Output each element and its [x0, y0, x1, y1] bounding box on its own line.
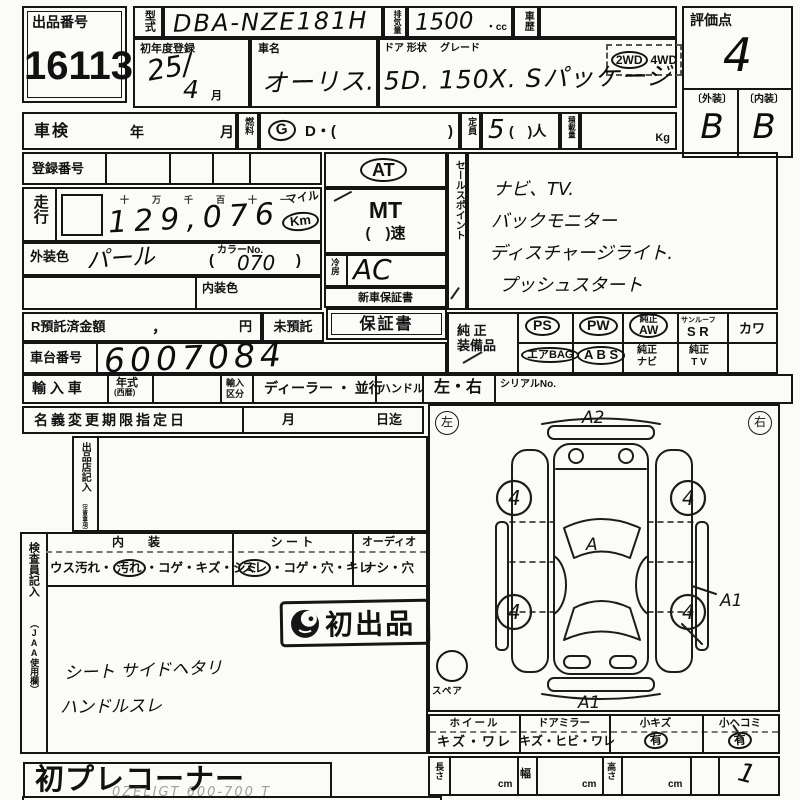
capacity-value: 5	[488, 116, 505, 145]
equip-navi-bot: ナビ	[637, 357, 657, 368]
ext-color-label: 外装色	[30, 250, 69, 265]
equip-aw: 純正 AW	[629, 313, 668, 338]
import-label: 輸 入 車	[32, 381, 82, 397]
new-warranty-box: 新車保証書	[324, 287, 447, 308]
first-reg-month-label: 月	[211, 90, 222, 102]
fuel-label: 燃料	[244, 117, 254, 135]
interior-grade-label: 〔内装〕	[740, 94, 788, 105]
shaken-box: 車検 年 月	[22, 112, 237, 150]
small-dent-header: 小ヘコミ	[702, 718, 778, 730]
model-value-box: DBA-NZE181H	[163, 6, 383, 38]
sales-line-2: バックモニター	[491, 212, 617, 232]
width-label: 幅	[520, 768, 531, 780]
warranty-label: 保証書	[328, 316, 445, 334]
import-dealer: ディーラー ・ 並行	[264, 381, 383, 397]
color-no-value: 070	[237, 252, 275, 274]
deposit-comma: ，	[152, 320, 167, 337]
equipment-label-1: 純 正	[457, 324, 487, 339]
sales-line-1: ナビ、TV.	[493, 180, 574, 200]
mt-value: MT	[326, 198, 445, 224]
fuel-label-box: 燃料	[237, 112, 259, 150]
sales-label-box: セールスポイント	[447, 152, 467, 310]
width-unit: cm	[582, 779, 596, 790]
color-no-close: )	[296, 253, 301, 270]
first-reg-box: 初年度登録 25/ 4 月	[133, 38, 250, 108]
inspector-label: 検査員記入	[27, 542, 39, 597]
length-unit: cm	[498, 779, 512, 790]
wheel-mark-4: 4	[682, 600, 695, 624]
fuel-gasoline: G	[267, 118, 297, 142]
grade-label: グレード	[440, 43, 480, 54]
seller-label-sub: （注意事項）	[81, 500, 87, 533]
mt-box: MT ( )速	[324, 188, 447, 254]
seat-opt-circled: スレ	[238, 559, 271, 577]
import-class-label: 輸入区分	[226, 378, 244, 400]
ext-color-value: パール	[85, 245, 156, 276]
equip-navi-top: 純正	[637, 345, 657, 356]
not-deposited-label: 未預託	[264, 320, 322, 335]
interior-opt-circled: 汚れ	[113, 559, 146, 577]
name-change-until: 日迄	[376, 413, 402, 428]
seller-box: 出品店記入 （注意事項）	[72, 436, 428, 532]
equip-pw: PW	[579, 316, 618, 336]
dimensions-row: 長さ cm 幅 cm 高さ cm 1	[428, 756, 780, 796]
score-label: 評価点	[690, 13, 732, 29]
score-value: 4	[684, 30, 791, 82]
history-value-box	[539, 6, 677, 38]
import-year-sub: (西暦)	[114, 389, 135, 398]
first-reg-month-value: 4	[183, 76, 199, 104]
stamp-logo-icon	[289, 608, 322, 641]
load-label: 積載量	[567, 116, 575, 139]
mileage-value: 129,076	[107, 197, 282, 240]
ac-value: AC	[353, 254, 392, 285]
score-box: 評価点 4 〔外装〕 〔内装〕 B B	[682, 6, 793, 158]
chassis-box: 車台番号 6007084	[22, 342, 447, 374]
small-scratch-header: 小キズ	[609, 718, 702, 730]
small-scratch-value: 有	[643, 731, 669, 751]
shaken-year: 年	[130, 125, 144, 141]
color-no-open: (	[209, 253, 214, 270]
mirror-header: ドアミラー	[519, 718, 609, 730]
fuel-diesel: D・(	[305, 124, 336, 141]
wheel-mark-2: 4	[682, 486, 695, 510]
load-label-box: 積載量	[560, 112, 580, 150]
equip-aw-bot: AW	[639, 324, 658, 336]
interior-options: ウス汚れ・汚れ・コゲ・キズ・シミ	[50, 559, 258, 577]
interior-opt-pre: ウス汚れ・	[50, 561, 113, 575]
sales-label: セールスポイント	[453, 160, 464, 240]
equipment-label-2: 装備品	[457, 339, 496, 354]
height-label: 高さ	[606, 762, 616, 780]
first-listing-stamp-text: 初出品	[325, 602, 416, 644]
km-label: Km	[281, 210, 320, 232]
car-diagram-box: 左 右 スペア	[428, 404, 780, 712]
displacement-label-box: 排気量	[383, 6, 407, 38]
capacity-value-box: 5 ( )人	[481, 112, 560, 150]
int-color-label: 内装色	[202, 282, 238, 295]
warranty-box: 保証書	[326, 308, 447, 340]
inspector-box: 検査員記入 （JAA使用欄） 内 装 シ ー ト オーディオ ウス汚れ・汚れ・コ…	[20, 532, 428, 754]
deposit-label: R預託済金額	[31, 320, 105, 335]
seller-label: 出品店記入	[79, 442, 90, 492]
auction-sheet: 出品番号 16113 型式 DBA-NZE181H 排気量 1500 ・cc 車…	[0, 0, 800, 800]
model-label: 型式	[143, 10, 155, 32]
cut-off-box	[22, 796, 442, 800]
dims-mark: 1	[735, 758, 758, 790]
at-box: AT	[324, 152, 447, 188]
annotation-a-mid: A	[585, 535, 598, 555]
interior-header: 内 装	[46, 536, 232, 549]
int-color-box: 内装色	[22, 276, 322, 310]
inspector-label-sub: （JAA使用欄）	[29, 619, 39, 694]
sales-line-4: プッシュスタート	[499, 276, 643, 296]
new-warranty-label: 新車保証書	[326, 292, 445, 304]
handle-lr: 左・右	[434, 379, 482, 397]
ext-color-box: 外装色 カラーNo. パール ( 070 )	[22, 242, 322, 276]
displacement-value-box: 1500 ・cc	[407, 6, 513, 38]
first-listing-stamp: 初出品	[280, 599, 431, 648]
mt-speed: ( )速	[326, 226, 445, 243]
import-class-bot: 区分	[226, 389, 244, 399]
exterior-grade: B	[688, 108, 736, 146]
equip-ps: PS	[525, 316, 560, 336]
equip-sr: S R	[687, 325, 709, 340]
mileage-unit-square	[61, 194, 103, 236]
handle-label: ハンドル	[380, 383, 424, 395]
audio-header: オーディオ	[352, 536, 426, 548]
equip-abs: A B S	[577, 346, 625, 365]
inspector-note-2: ハンドルスレ	[60, 697, 162, 718]
interior-grade: B	[740, 108, 788, 146]
capacity-suffix: ( )人	[509, 124, 546, 140]
sales-line-3: ディスチャージライト.	[489, 244, 673, 264]
equip-navi: 純正ナビ	[637, 345, 657, 368]
load-value-box: Kg	[580, 112, 677, 150]
displacement-value: 1500	[415, 9, 474, 37]
shaken-month: 月	[220, 125, 234, 141]
height-unit: cm	[668, 779, 682, 790]
serial-label: シリアルNo.	[500, 379, 556, 390]
model-value: DBA-NZE181H	[173, 7, 369, 37]
equip-tv-top: 純正	[689, 345, 709, 356]
load-unit: Kg	[655, 132, 670, 144]
damage-row: ホイール ドアミラー 小キズ 小ヘコミ キズ・ワレ キズ・ヒビ・ワレ 有 有	[428, 714, 780, 754]
chassis-label: 車台番号	[30, 351, 82, 366]
mileage-box: 走行 十万千百十一 マイル Km 129,076	[22, 187, 322, 242]
mileage-label: 走行	[31, 194, 48, 224]
shaken-label: 車検	[34, 123, 70, 141]
history-label: 車歴	[522, 11, 533, 31]
fuel-value-box: G D・( )	[259, 112, 460, 150]
equip-tv: 純正T V	[689, 345, 709, 368]
ac-label: 冷房	[330, 258, 340, 275]
door-shape-label: ドア 形状	[384, 43, 427, 54]
lot-label: 出品番号	[32, 15, 88, 31]
history-label-box: 車歴	[513, 6, 539, 38]
wheel-header: ホイール	[430, 718, 519, 730]
length-label: 長さ	[434, 762, 444, 780]
fuel-paren-close: )	[448, 124, 453, 141]
lot-number: 16113	[24, 44, 129, 89]
model-label-box: 型式	[133, 6, 163, 38]
displacement-unit: ・cc	[486, 22, 507, 33]
ac-box: 冷房 AC	[324, 254, 447, 287]
lot-number-box: 出品番号 16113	[22, 6, 127, 103]
name-change-month: 月	[282, 413, 295, 428]
name-change-row: 名義変更期限指定日 月 日迄	[22, 406, 424, 434]
equip-leather: カワ	[739, 322, 765, 337]
wheel-mark-1: 4	[508, 486, 521, 510]
car-name-label: 車名	[258, 43, 280, 55]
sales-content-box: ナビ、TV. バックモニター ディスチャージライト. プッシュスタート	[467, 152, 778, 310]
name-change-label: 名義変更期限指定日	[34, 413, 187, 429]
exterior-grade-label: 〔外装〕	[688, 94, 736, 105]
annotation-a1-bottom: A1	[577, 693, 600, 710]
deposit-yen: 円	[239, 320, 252, 335]
wheel-mark-3: 4	[508, 600, 521, 624]
wheel-value: キズ・ワレ	[430, 735, 519, 750]
equip-airbag: エアBAG	[521, 347, 579, 363]
annotation-a2: A2	[581, 408, 604, 428]
import-row: 輸 入 車 年式 (西暦) 輸入区分 ディーラー ・ 並行 ハンドル 左・右 シ…	[22, 374, 793, 404]
inspector-note-1: シート サイドヘタリ	[64, 659, 223, 684]
at-value: AT	[360, 158, 407, 182]
capacity-label-box: 定員	[460, 112, 481, 150]
mile-label: マイル	[285, 190, 319, 207]
equipment-box: 純 正 装備品 PS PW 純正 AW サンルーフ S R カワ エアBAG A…	[447, 312, 778, 374]
annotation-a1-side: A1	[719, 591, 742, 611]
reg-number-label: 登録番号	[32, 162, 84, 177]
mirror-value: キズ・ヒビ・ワレ	[519, 735, 609, 748]
audio-options: ナシ・穴	[352, 561, 426, 575]
capacity-label: 定員	[467, 117, 477, 135]
reg-number-box: 登録番号	[22, 152, 322, 185]
equip-tv-bot: T V	[691, 357, 707, 368]
displacement-label: 排気量	[392, 10, 401, 34]
car-top-view-sketch: 4 4 4 4 A2 A A1 A1	[430, 406, 778, 710]
seat-header: シ ー ト	[232, 536, 352, 549]
import-class-top: 輸入	[226, 378, 244, 388]
